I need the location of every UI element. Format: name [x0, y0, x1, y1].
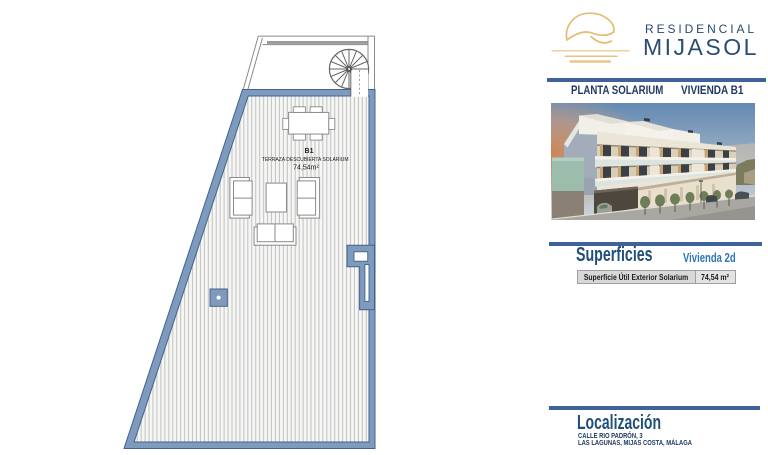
svg-text:TERRAZA DESCUBIERTA SOLARIUM: TERRAZA DESCUBIERTA SOLARIUM	[262, 157, 349, 163]
svg-text:74,54m²: 74,54m²	[293, 165, 319, 172]
svg-text:B1: B1	[305, 148, 314, 155]
